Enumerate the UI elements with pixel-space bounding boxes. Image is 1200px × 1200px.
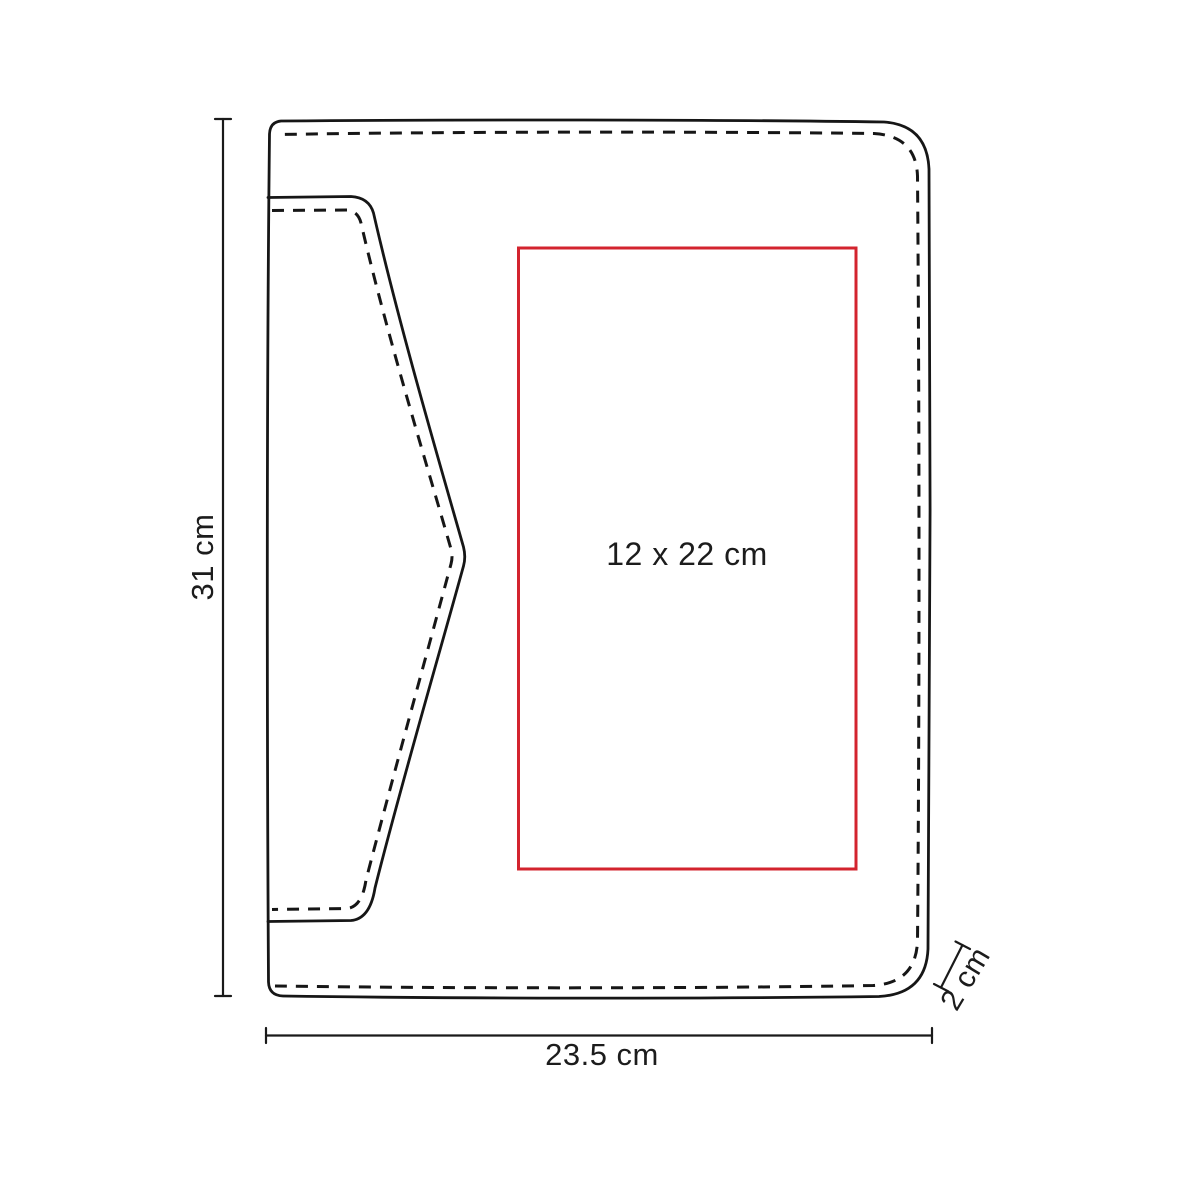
- pocket-flap-outline: [268, 197, 465, 922]
- print-area-label: 12 x 22 cm: [587, 538, 787, 570]
- height-dimension-label: 31 cm: [187, 497, 219, 617]
- dimension-diagram: 31 cm 23.5 cm 2 cm 12 x 22 cm: [0, 0, 1200, 1200]
- width-dimension-label: 23.5 cm: [522, 1039, 682, 1071]
- diagram-canvas: [0, 0, 1200, 1200]
- pocket-flap-stitch-line: [272, 210, 452, 910]
